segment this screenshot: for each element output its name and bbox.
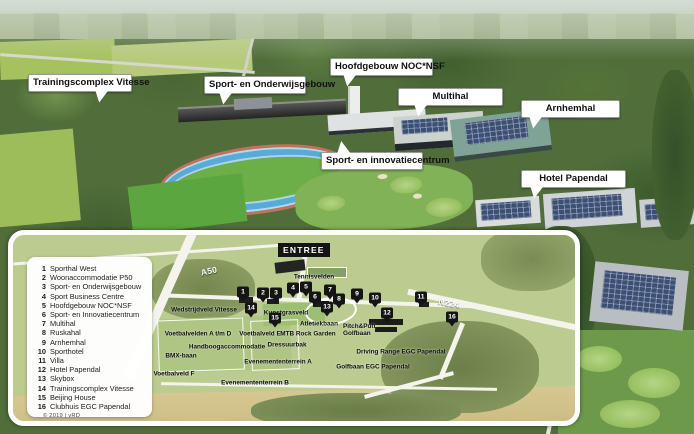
map-facility-label: Voetbalvelden A t/m D <box>165 331 232 338</box>
golf-green <box>390 175 423 194</box>
map-facility-label: Atletiekbaan <box>300 321 338 328</box>
legend-item-label: Hotel Papendal <box>50 365 101 374</box>
map-road-label: N224 <box>437 296 460 310</box>
legend-item-5: 5Hoofdgebouw NOC*NSF <box>33 301 147 310</box>
legend-item-11: 11Villa <box>33 356 147 365</box>
map-marker-12: 12 <box>381 308 393 319</box>
callout-label: Sport- en innovatiecentrum <box>326 155 450 166</box>
farm-field <box>0 128 81 227</box>
callout-trainingscomplex-vitesse: Trainingscomplex Vitesse <box>28 74 132 92</box>
legend-item-number: 14 <box>33 384 46 393</box>
legend-item-label: Sporthotel <box>50 347 84 356</box>
legend-item-2: 2Woonaccommodatie P50 <box>33 273 147 282</box>
map-facility-label: Driving Range EGC Papendal <box>356 349 445 356</box>
callout-arnhemhal: Arnhemhal <box>521 100 620 118</box>
legend-item-number: 10 <box>33 347 46 356</box>
legend-item-label: Ruskahal <box>50 328 81 337</box>
legend-item-label: Trainingscomplex Vitesse <box>50 384 134 393</box>
legend-item-12: 12Hotel Papendal <box>33 365 147 374</box>
legend-item-number: 2 <box>33 273 46 282</box>
map-facility-label: Evenemententerrein B <box>221 380 289 387</box>
map-facility-label: Evenemententerrein A <box>244 359 312 366</box>
screenshot-root: Trainingscomplex Vitesse Sport- en Onder… <box>0 0 694 434</box>
map-marker-4: 4 <box>287 283 299 294</box>
map-marker-2: 2 <box>257 288 269 299</box>
inset-map: ENTREE 1Sporthal West2Woonaccommodatie P… <box>8 230 580 426</box>
legend-item-label: Sport- en Onderwijsgebouw <box>50 282 141 291</box>
legend-item-number: 7 <box>33 319 46 328</box>
map-facility-label: Golfbaan EGC Papendal <box>336 364 410 371</box>
callout-multihal: Multihal <box>398 88 503 106</box>
golf-green <box>600 400 660 428</box>
legend-item-number: 11 <box>33 356 46 365</box>
callout-label: Multihal <box>433 91 469 102</box>
legend-item-13: 13Skybox <box>33 374 147 383</box>
legend-item-label: Clubhuis EGC Papendal <box>50 402 130 411</box>
map-facility-label: Handboogaccommodatie <box>189 344 265 351</box>
callout-label: Hotel Papendal <box>539 173 608 184</box>
map-facility-label: Voetbalveld F <box>153 371 194 378</box>
solar-roof <box>601 270 677 315</box>
map-facility-label: MTB Rock Garden <box>280 331 335 338</box>
legend-item-15: 15Beijing House <box>33 393 147 402</box>
inset-map-content: ENTREE 1Sporthal West2Woonaccommodatie P… <box>13 235 575 421</box>
solar-roof <box>401 117 448 134</box>
legend-item-7: 7Multihal <box>33 319 147 328</box>
legend-item-number: 6 <box>33 310 46 319</box>
legend-item-10: 10Sporthotel <box>33 347 147 356</box>
legend-item-number: 16 <box>33 402 46 411</box>
hotel-building <box>475 196 541 227</box>
legend-item-label: Multihal <box>50 319 75 328</box>
map-facility-label: Pitch&Putt Golfbaan <box>343 324 387 338</box>
legend-item-number: 9 <box>33 338 46 347</box>
legend-item-number: 12 <box>33 365 46 374</box>
legend-item-14: 14Trainingscomplex Vitesse <box>33 384 147 393</box>
legend-item-number: 13 <box>33 374 46 383</box>
onderwijsgebouw-building <box>234 97 273 110</box>
atmospheric-haze <box>0 0 694 60</box>
legend-item-4: 4Sport Business Centre <box>33 292 147 301</box>
map-marker-13: 13 <box>321 302 333 313</box>
legend-item-label: Sporthal West <box>50 264 96 273</box>
legend-item-number: 5 <box>33 301 46 310</box>
legend-item-8: 8Ruskahal <box>33 328 147 337</box>
solar-roof <box>480 200 531 220</box>
callout-label: Sport- en Onderwijsgebouw <box>209 79 335 90</box>
legend-item-1: 1Sporthal West <box>33 264 147 273</box>
map-marker-11: 11 <box>415 292 427 303</box>
tree-cluster <box>652 70 694 240</box>
legend-item-label: Hoofdgebouw NOC*NSF <box>50 301 132 310</box>
legend-item-number: 4 <box>33 292 46 301</box>
map-legend: 1Sporthal West2Woonaccommodatie P503Spor… <box>27 257 152 417</box>
callout-sport-onderwijsgebouw: Sport- en Onderwijsgebouw <box>204 76 306 94</box>
legend-item-label: Arnhemhal <box>50 338 86 347</box>
callout-sport-innovatiecentrum: Sport- en innovatiecentrum <box>321 152 423 170</box>
golf-green <box>317 195 346 212</box>
clubhouse-building <box>589 261 689 330</box>
map-facility-label: BMX-baan <box>165 353 196 360</box>
legend-item-label: Beijing House <box>50 393 96 402</box>
legend-item-label: Skybox <box>50 374 74 383</box>
map-facility-label: Wedstrijdveld Vitesse <box>171 307 237 314</box>
legend-item-number: 15 <box>33 393 46 402</box>
callout-label: Hoofdgebouw NOC*NSF <box>335 61 445 72</box>
golf-green <box>425 197 462 218</box>
solar-roof <box>551 194 622 221</box>
map-marker-16: 16 <box>446 312 458 323</box>
solar-roof <box>464 116 528 145</box>
legend-item-number: 8 <box>33 328 46 337</box>
callout-hotel-papendal: Hotel Papendal <box>521 170 626 188</box>
map-marker-3: 3 <box>270 288 282 299</box>
copyright-text: © 2019 | vRD <box>43 413 80 419</box>
map-marker-15: 15 <box>269 313 281 324</box>
map-marker-10: 10 <box>369 293 381 304</box>
map-marker-1: 1 <box>237 287 249 298</box>
hotel-building <box>543 188 637 229</box>
sand-bunker <box>377 174 387 180</box>
map-marker-6: 6 <box>309 292 321 303</box>
map-marker-8: 8 <box>333 294 345 305</box>
legend-item-number: 1 <box>33 264 46 273</box>
map-marker-14: 14 <box>245 303 257 314</box>
callout-label: Arnhemhal <box>546 103 596 114</box>
legend-item-number: 3 <box>33 282 46 291</box>
legend-item-3: 3Sport- en Onderwijsgebouw <box>33 282 147 291</box>
legend-item-label: Sport- en Innovatiecentrum <box>50 310 139 319</box>
golf-green <box>628 368 680 398</box>
legend-item-6: 6Sport- en Innovatiecentrum <box>33 310 147 319</box>
legend-item-label: Woonaccommodatie P50 <box>50 273 132 282</box>
golf-green <box>576 346 622 372</box>
map-facility-label: Tennisvelden <box>294 274 334 281</box>
legend-item-16: 16Clubhuis EGC Papendal <box>33 402 147 411</box>
legend-item-label: Sport Business Centre <box>50 292 124 301</box>
callout-label: Trainingscomplex Vitesse <box>33 77 150 88</box>
entree-badge: ENTREE <box>278 243 330 257</box>
sand-bunker <box>413 193 422 199</box>
legend-item-9: 9Arnhemhal <box>33 338 147 347</box>
callout-hoofdgebouw-nocnsf: Hoofdgebouw NOC*NSF <box>330 58 433 76</box>
map-marker-9: 9 <box>351 289 363 300</box>
legend-item-label: Villa <box>50 356 64 365</box>
map-facility-label: Voetbalveld E <box>239 331 280 338</box>
map-facility-label: Dressuurbak <box>267 342 306 349</box>
map-road-label: A50 <box>200 264 218 277</box>
